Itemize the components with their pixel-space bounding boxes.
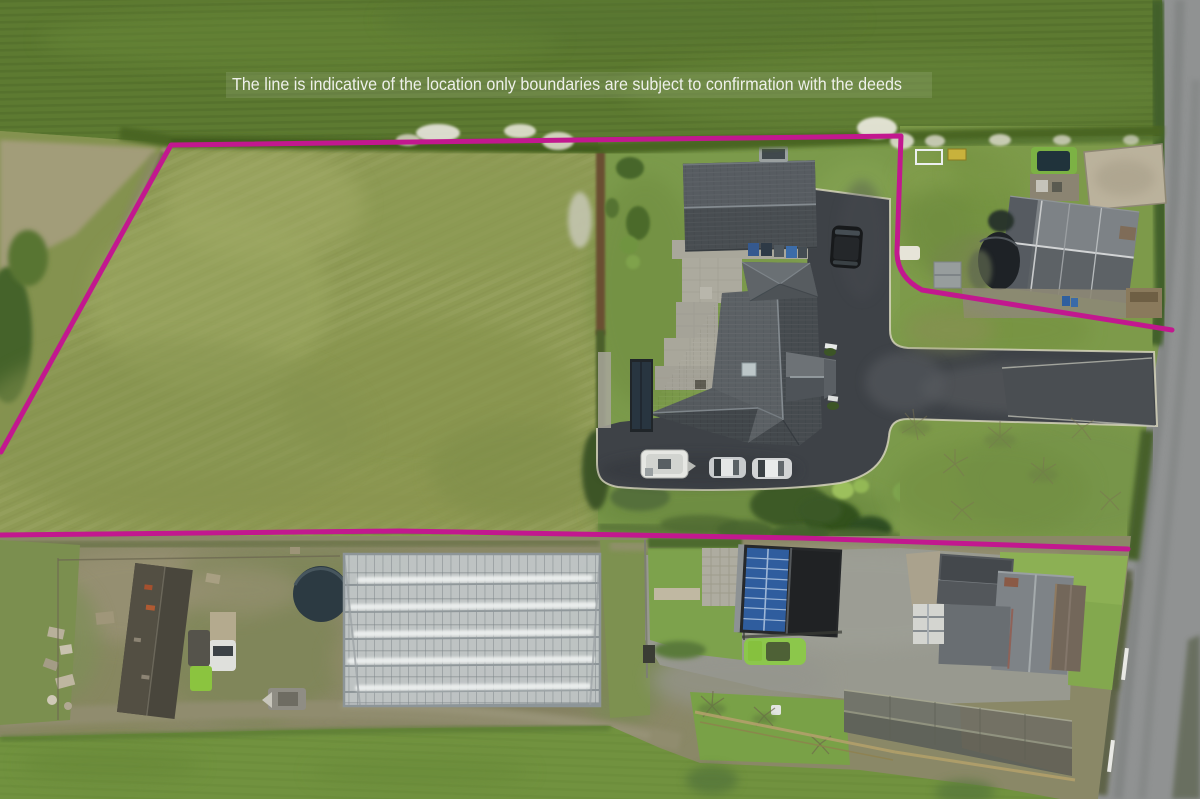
svg-text:The line is indicative of the: The line is indicative of the location o… (232, 74, 902, 94)
